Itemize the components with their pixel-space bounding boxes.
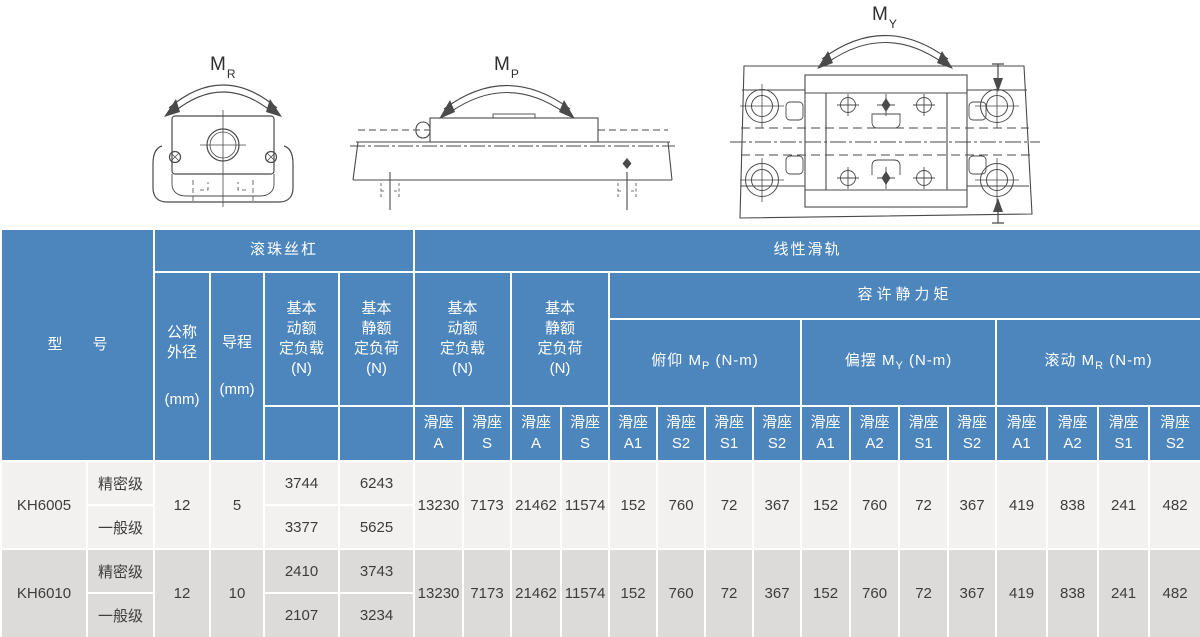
lg-cell: 760 — [850, 461, 899, 549]
header-pitch-moment: 俯仰 MP (N-m) — [609, 319, 801, 406]
roll-sub: R — [1095, 360, 1104, 372]
lg-cell: 367 — [753, 461, 801, 549]
lg-cell: 760 — [657, 549, 705, 637]
lead-title: 导程 — [222, 333, 252, 353]
header-nominal-od: 公称 外径 (mm) — [154, 272, 210, 461]
table-row: KH6005 精密级 12 5 3744 6243 13230 7173 214… — [1, 461, 1200, 505]
lg-cell: 241 — [1098, 461, 1149, 549]
lead-cell: 5 — [210, 461, 264, 549]
lead-cell: 10 — [210, 549, 264, 637]
lg-cell: 21462 — [511, 549, 561, 637]
header-yaw-moment: 偏摆 MY (N-m) — [801, 319, 996, 406]
lg-cell: 21462 — [511, 461, 561, 549]
header-slider-a: 滑座 A — [511, 406, 561, 461]
header-slider-a2: 滑座 A2 — [1047, 406, 1098, 461]
my-label-sub: Y — [889, 17, 897, 31]
spec-sheet-page: MR — [0, 0, 1200, 637]
bs-static-cell: 3743 — [339, 549, 414, 593]
mr-label: MR — [210, 55, 235, 77]
table-row: KH6010 精密级 12 10 2410 3743 13230 7173 21… — [1, 549, 1200, 593]
header-lg-static-load: 基本 静额 定负荷 (N) — [511, 272, 609, 406]
bs-dynamic-cell: 2410 — [264, 549, 339, 593]
lg-cell: 72 — [705, 549, 753, 637]
lg-cell: 367 — [753, 549, 801, 637]
header-slider-a1: 滑座 A1 — [609, 406, 657, 461]
header-slider-s1: 滑座 S1 — [705, 406, 753, 461]
grade-cell: 精密级 — [87, 461, 154, 505]
empty-cell — [339, 406, 414, 461]
pitch-prefix: 俯仰 M — [651, 352, 702, 369]
header-slider-a: 滑座 A — [414, 406, 463, 461]
lg-cell: 838 — [1047, 461, 1098, 549]
mr-label-sub: R — [227, 67, 236, 81]
roll-prefix: 滚动 M — [1044, 352, 1095, 369]
model-cell: KH6010 — [1, 549, 87, 637]
nominal-od-cell: 12 — [154, 461, 210, 549]
lg-cell: 367 — [948, 461, 996, 549]
header-lg-dynamic-load: 基本 动额 定负载 (N) — [414, 272, 511, 406]
lg-cell: 11574 — [561, 549, 609, 637]
empty-cell — [264, 406, 339, 461]
bs-static-cell: 5625 — [339, 505, 414, 549]
bs-dynamic-cell: 2107 — [264, 593, 339, 637]
bs-dynamic-cell: 3377 — [264, 505, 339, 549]
lg-cell: 11574 — [561, 461, 609, 549]
lg-cell: 152 — [801, 549, 850, 637]
header-slider-s1: 滑座 S1 — [899, 406, 948, 461]
nominal-od-title: 公称 外径 — [167, 323, 197, 364]
header-slider-a1: 滑座 A1 — [801, 406, 850, 461]
lg-cell: 13230 — [414, 461, 463, 549]
lg-cell: 367 — [948, 549, 996, 637]
yaw-suffix: (N-m) — [904, 352, 952, 369]
bs-dynamic-cell: 3744 — [264, 461, 339, 505]
spec-table: 型 号 滚珠丝杠 线性滑轨 公称 外径 (mm) 导程 (mm) — [0, 228, 1200, 637]
header-row-2: 公称 外径 (mm) 导程 (mm) 基本 动额 定负载 (N) 基本 静额 定… — [1, 272, 1200, 319]
my-label-main: M — [872, 4, 888, 25]
nominal-od-unit: (mm) — [165, 390, 200, 410]
header-linear-guide: 线性滑轨 — [414, 229, 1200, 272]
header-slider-s: 滑座 S — [463, 406, 511, 461]
lg-cell: 419 — [996, 549, 1047, 637]
lg-cell: 152 — [609, 461, 657, 549]
header-model: 型 号 — [1, 229, 154, 461]
lg-cell: 760 — [657, 461, 705, 549]
yaw-moment-diagram — [730, 2, 1040, 228]
yaw-prefix: 偏摆 M — [845, 352, 896, 369]
lg-cell: 419 — [996, 461, 1047, 549]
lead-unit: (mm) — [220, 380, 255, 400]
grade-cell: 一般级 — [87, 505, 154, 549]
mp-label-main: M — [494, 54, 510, 75]
header-slider-s2: 滑座 S2 — [1149, 406, 1200, 461]
diagrams-panel: MR — [0, 0, 1200, 228]
grade-cell: 一般级 — [87, 593, 154, 637]
header-bs-dynamic-load: 基本 动额 定负载 (N) — [264, 272, 339, 406]
mp-label: MP — [494, 55, 518, 77]
lg-cell: 72 — [705, 461, 753, 549]
model-cell: KH6005 — [1, 461, 87, 549]
lg-cell: 7173 — [463, 461, 511, 549]
header-slider-s2: 滑座 S2 — [948, 406, 996, 461]
header-slider-a1: 滑座 A1 — [996, 406, 1047, 461]
roll-suffix: (N-m) — [1104, 352, 1152, 369]
header-slider-a2: 滑座 A2 — [850, 406, 899, 461]
lg-cell: 838 — [1047, 549, 1098, 637]
my-label: MY — [872, 5, 896, 27]
bs-static-cell: 3234 — [339, 593, 414, 637]
lg-cell: 152 — [801, 461, 850, 549]
header-roll-moment: 滚动 MR (N-m) — [996, 319, 1200, 406]
nominal-od-cell: 12 — [154, 549, 210, 637]
lg-cell: 72 — [899, 549, 948, 637]
lg-cell: 13230 — [414, 549, 463, 637]
lg-cell: 482 — [1149, 549, 1200, 637]
lg-cell: 482 — [1149, 461, 1200, 549]
header-allowable-moment: 容许静力矩 — [609, 272, 1200, 319]
yaw-sub: Y — [895, 360, 903, 372]
grade-cell: 精密级 — [87, 549, 154, 593]
lg-cell: 241 — [1098, 549, 1149, 637]
header-slider-s2: 滑座 S2 — [657, 406, 705, 461]
header-slider-s2: 滑座 S2 — [753, 406, 801, 461]
lg-cell: 72 — [899, 461, 948, 549]
header-row-1: 型 号 滚珠丝杠 线性滑轨 — [1, 229, 1200, 272]
header-slider-s1: 滑座 S1 — [1098, 406, 1149, 461]
header-slider-s: 滑座 S — [561, 406, 609, 461]
lg-cell: 760 — [850, 549, 899, 637]
header-ball-screw: 滚珠丝杠 — [154, 229, 414, 272]
header-bs-static-load: 基本 静额 定负荷 (N) — [339, 272, 414, 406]
pitch-suffix: (N-m) — [710, 352, 758, 369]
bs-static-cell: 6243 — [339, 461, 414, 505]
lg-cell: 152 — [609, 549, 657, 637]
header-lead: 导程 (mm) — [210, 272, 264, 461]
mr-label-main: M — [210, 54, 226, 75]
mp-label-sub: P — [511, 67, 519, 81]
lg-cell: 7173 — [463, 549, 511, 637]
